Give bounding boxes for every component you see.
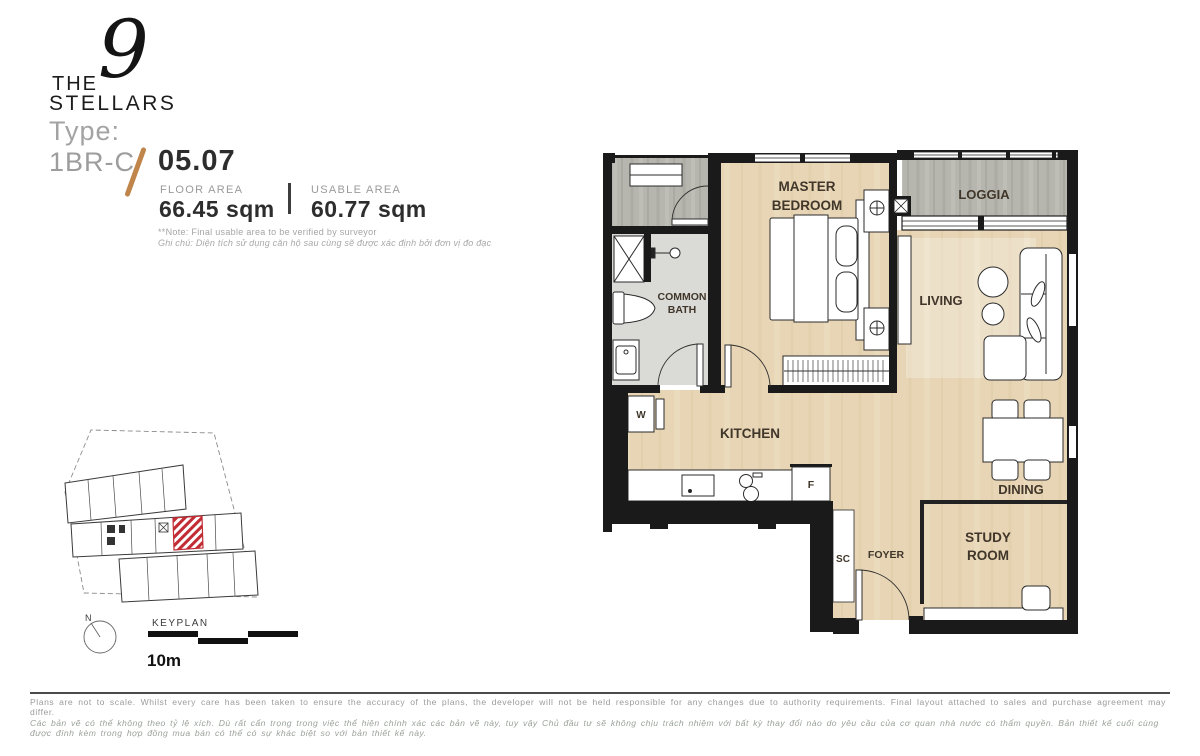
usable-area-label: USABLE AREA — [311, 184, 401, 196]
building-outline — [65, 465, 258, 602]
bath-door-leaf — [697, 344, 703, 386]
entrance-door-leaf — [856, 570, 862, 620]
dining-side-window — [1069, 426, 1076, 458]
ledge-door-leaf — [672, 219, 708, 225]
bed-blanket — [794, 215, 828, 322]
disclaimer-vietnamese: Các bản vẽ có thể không theo tỷ lệ xích.… — [30, 718, 1170, 738]
label-common-bath: BATH — [668, 304, 696, 316]
usable-area-value: 60.77 sqm — [311, 196, 427, 223]
dining-chair — [1024, 400, 1050, 420]
disclaimer-english: Plans are not to scale. Whilst every car… — [30, 697, 1170, 717]
label-fridge: F — [808, 479, 815, 491]
label-foyer: FOYER — [868, 549, 905, 561]
side-table — [982, 303, 1004, 325]
brand-stellars: STELLARS — [49, 92, 176, 116]
scale-label: 10m — [147, 651, 181, 670]
brand-nine-numeral: 9 — [98, 10, 149, 90]
note-vietnamese: Ghi chú: Diện tích sử dụng căn hộ sau cù… — [158, 238, 491, 248]
kitchen-sink — [682, 475, 714, 496]
bedroom-door-leaf — [725, 345, 731, 387]
dining-table — [983, 418, 1063, 462]
label-common-bath: COMMON — [658, 291, 707, 303]
unit-number: 05.07 — [158, 145, 236, 178]
stove-knob — [753, 473, 762, 477]
type-label: Type: — [49, 116, 120, 147]
label-master-bedroom: MASTER — [779, 179, 836, 194]
label-study-room: STUDY — [965, 530, 1011, 545]
divider-rule — [30, 692, 1170, 694]
loggia-living-window — [902, 216, 1067, 230]
living-side-window — [1069, 254, 1076, 326]
dining-chair — [992, 460, 1018, 480]
label-shoe-cabinet: SC — [836, 554, 850, 565]
kitchen-tall-unit — [656, 399, 664, 429]
label-loggia: LOGGIA — [958, 187, 1010, 202]
faucet — [624, 350, 628, 354]
shower-control — [670, 248, 680, 258]
keyplan-label: KEYPLAN — [152, 618, 209, 629]
highlighted-unit — [173, 516, 203, 550]
label-washer: W — [636, 410, 646, 421]
dining-chair — [992, 400, 1018, 420]
label-dining: DINING — [998, 482, 1044, 497]
floorplan: MASTER BEDROOM LOGGIA LIVING COMMON BATH… — [600, 142, 1080, 652]
tv-console — [898, 236, 911, 344]
unit-type: 1BR-C — [49, 147, 135, 178]
keyplan: N KEYPLAN 10m — [55, 425, 315, 675]
floor-area-value: 66.45 sqm — [159, 196, 275, 223]
study-chair — [1022, 586, 1050, 610]
label-study-room: ROOM — [967, 548, 1009, 563]
pillow — [836, 226, 857, 266]
label-living: LIVING — [919, 293, 962, 308]
north-label: N — [85, 613, 92, 623]
floor-area-label: FLOOR AREA — [160, 184, 243, 196]
dining-chair — [1024, 460, 1050, 480]
note-english: **Note: Final usable area to be verified… — [158, 227, 377, 237]
sink-drain — [689, 490, 692, 493]
toilet-tank — [613, 292, 624, 324]
stove-burner — [744, 487, 759, 502]
sofa-chaise — [984, 336, 1026, 380]
label-master-bedroom: BEDROOM — [772, 198, 843, 213]
label-kitchen: KITCHEN — [720, 426, 780, 441]
pillow — [836, 272, 857, 312]
stove-burner — [740, 475, 753, 488]
area-divider — [288, 183, 291, 214]
compass-needle — [91, 623, 100, 637]
scale-bar — [148, 631, 298, 644]
coffee-table — [978, 267, 1008, 297]
disclaimer: Plans are not to scale. Whilst every car… — [30, 697, 1170, 738]
